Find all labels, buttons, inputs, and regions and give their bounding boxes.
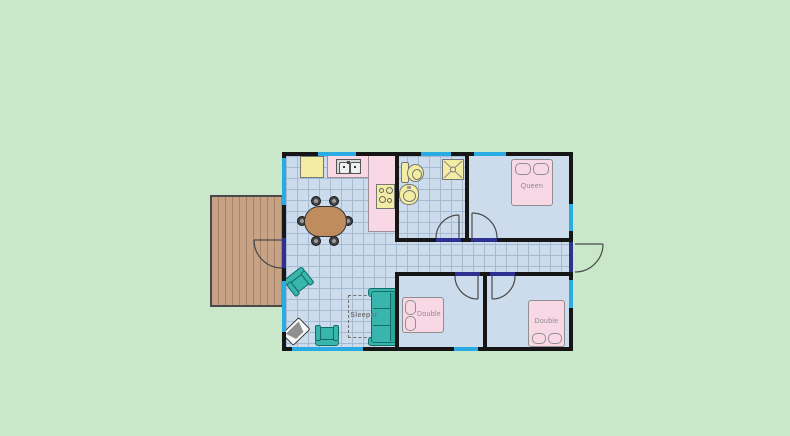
dining-chair <box>329 196 339 206</box>
stove <box>376 184 395 209</box>
queen-door-sill <box>471 238 497 242</box>
armchair <box>315 324 339 346</box>
wall-hallway-top <box>497 238 569 242</box>
pillow <box>533 163 549 175</box>
double-left-door-sill <box>455 272 480 276</box>
window <box>292 347 363 351</box>
dining-table <box>304 206 347 237</box>
dining-chair <box>329 236 339 246</box>
pillow <box>515 163 531 175</box>
wall-hallway-top <box>461 238 471 242</box>
wall-living-bathroom <box>395 156 399 238</box>
sink-bowl <box>403 190 416 202</box>
sink-basin <box>350 162 361 174</box>
window <box>421 152 451 156</box>
double-bed-label: Double <box>415 311 443 318</box>
double-bed: Double <box>402 297 444 333</box>
sleeper-label: Sleeper <box>340 312 388 319</box>
queen-bed: Queen <box>511 159 553 206</box>
deck-door-sill <box>282 238 286 268</box>
pillow <box>532 333 546 344</box>
double-bed: Double <box>528 300 565 347</box>
wall-hallway-top <box>395 238 436 242</box>
bathroom-door-sill <box>436 238 461 242</box>
toilet-bowl <box>407 164 424 182</box>
shower <box>442 159 464 180</box>
wall-bathroom-queen <box>465 156 469 238</box>
hallway-exterior-door-swing <box>575 244 603 272</box>
sink-faucet <box>347 161 350 164</box>
wall-hallway-bottom <box>395 272 455 276</box>
wall-between-doubles <box>483 276 487 347</box>
bathroom-sink <box>399 184 419 205</box>
pillow <box>405 316 416 331</box>
window <box>318 152 356 156</box>
refrigerator <box>300 156 324 178</box>
sink-faucet <box>407 186 411 189</box>
toilet-seat <box>412 169 422 180</box>
queen-bed-label: Queen <box>512 183 552 190</box>
deck <box>210 195 282 307</box>
wall-hallway-bottom <box>480 272 490 276</box>
sink-drain <box>343 166 345 168</box>
dining-chair <box>311 236 321 246</box>
sink-drain <box>354 166 356 168</box>
window <box>282 281 286 332</box>
double-bed-label: Double <box>529 318 564 325</box>
wall-hallway-bottom <box>515 272 569 276</box>
double-right-door-sill <box>490 272 515 276</box>
window <box>282 158 286 205</box>
wall-living-bedroom <box>395 276 399 347</box>
window <box>569 204 573 231</box>
hallway-exterior-door-sill <box>569 242 573 272</box>
window <box>454 347 478 351</box>
kitchen-sink <box>336 159 361 174</box>
dining-chair <box>311 196 321 206</box>
window <box>569 280 573 308</box>
floorplan-canvas: Sleeper Queen Double Double <box>0 0 790 436</box>
pillow <box>548 333 562 344</box>
window <box>474 152 506 156</box>
